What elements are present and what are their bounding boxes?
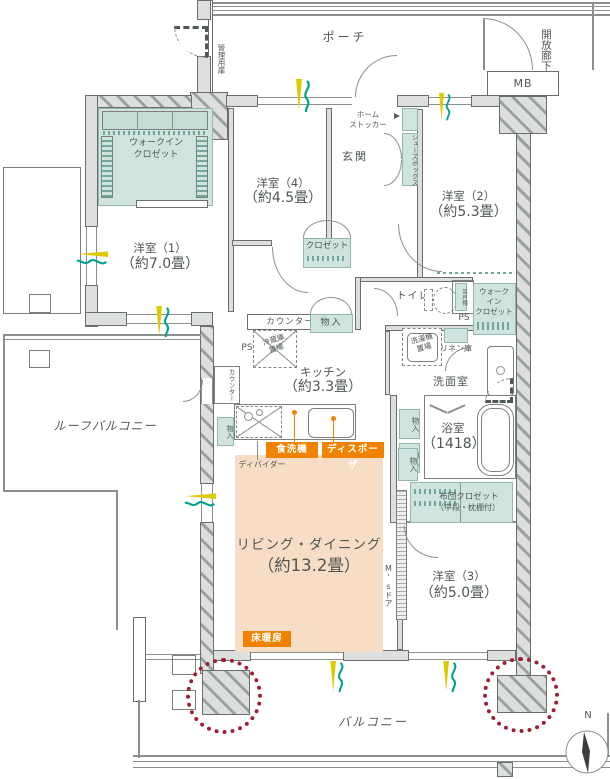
disposer-badge: ディスポーザ (322, 442, 384, 458)
wall (85, 95, 98, 227)
sliding-wall-rail (396, 490, 407, 620)
stove (308, 408, 354, 438)
shoes-box-label: シューズボックス (403, 134, 417, 185)
floor-heating-badge: 床暖房 (243, 631, 291, 647)
wic-left-label: ウォークイン (108, 138, 204, 149)
side-counter-label: カウンター (220, 369, 234, 402)
home-stocker-arrow (394, 113, 400, 119)
wall (191, 312, 213, 326)
western4-size: （約4.5畳） (231, 190, 335, 208)
compass-icon (562, 724, 610, 776)
wic-right-label: ウォーク (474, 287, 514, 296)
closet-label: クロゼット (305, 241, 349, 252)
vanity-bowl (496, 366, 505, 375)
balcony-wall (133, 617, 146, 702)
storage-box-small: 物入 (217, 417, 234, 446)
door-arc (327, 220, 351, 238)
kitchen-name: キッチン (287, 365, 359, 379)
management-door-arc (174, 26, 208, 58)
balcony-label: バルコニー (328, 715, 418, 730)
wic-right-label: クロゼット (474, 307, 514, 316)
management-door-label: 管理用扉 (211, 26, 225, 92)
window (251, 652, 343, 660)
vent-symbol (150, 305, 174, 339)
western4-name: 洋室（4） (237, 176, 329, 190)
roof-terrace-outline (3, 167, 81, 314)
divider-leader (257, 441, 258, 460)
wall (397, 95, 429, 107)
wall (200, 522, 214, 674)
vent-symbol (75, 245, 109, 269)
wall (197, 0, 211, 20)
western2-name: 洋室（2） (421, 189, 516, 203)
open-corridor-label: 開放廊下 (535, 18, 551, 82)
home-stocker-box (402, 108, 418, 131)
porch-label: ポーチ (298, 30, 392, 45)
pillar-highlight-circle (186, 658, 262, 734)
storage-box: 物入 (399, 409, 420, 439)
home-stocker-label: ホーム (348, 110, 388, 119)
dishwasher-badge: 食洗機 (266, 442, 318, 458)
balcony-partition (497, 762, 513, 777)
living-size: （約13.2畳） (240, 556, 378, 577)
hanging-cabinet: 吊戸棚 (455, 283, 467, 311)
entrance-label: 玄関 (337, 150, 373, 164)
vent-symbol (290, 78, 314, 114)
terrace-square (29, 294, 51, 313)
closet-dot-strip (307, 256, 347, 261)
storage-label: 物入 (310, 314, 353, 333)
door-arc (303, 220, 327, 238)
western2-size: （約5.3畳） (415, 204, 522, 222)
balcony-line (138, 700, 140, 758)
pillar (499, 96, 547, 134)
shelf-divider (172, 111, 173, 130)
western3-size: （約5.0畳） (417, 585, 501, 603)
bathroom-name: 浴室 (429, 421, 477, 435)
window (409, 652, 487, 660)
wic-right-label: イン (474, 297, 514, 306)
divider-label: ディバイダー (236, 460, 288, 470)
pillar-highlight-circle (483, 657, 559, 733)
floor-plan: MB ウォークイン クロゼット シューズボックス (0, 0, 610, 779)
futon-label: 布団クロゼット (422, 492, 516, 503)
vent-symbol (324, 660, 348, 694)
wall (226, 95, 258, 107)
sliding-door (136, 200, 208, 208)
leader-line (333, 420, 334, 443)
door-arc (384, 160, 402, 186)
kitchen-size: （約3.3畳） (280, 379, 366, 397)
sink-bowl (244, 412, 253, 421)
washroom-label: 洗面室 (427, 375, 475, 389)
bathroom-size: （1418） (422, 436, 484, 454)
corridor-line (212, 14, 610, 16)
wall (228, 108, 234, 312)
door-arc (398, 224, 442, 272)
linen-box (444, 328, 468, 343)
wall (232, 240, 272, 246)
wall (200, 326, 214, 484)
balcony-railing (133, 767, 610, 768)
wall (355, 277, 361, 330)
corridor-line (212, 6, 610, 7)
compass-north-label: N (578, 710, 598, 723)
wic-sliding-line (437, 272, 513, 274)
western1-name: 洋室（1） (112, 241, 208, 255)
wic-right-dot-strip (477, 322, 512, 330)
home-stocker-label: ストッカー (342, 120, 394, 129)
door-arc (404, 526, 438, 558)
wall-end (172, 655, 196, 675)
roof-balcony-line (116, 490, 118, 630)
door-arc (483, 18, 533, 70)
leader-line (294, 414, 295, 443)
wall (471, 95, 501, 107)
wic-left-label: クロゼット (108, 150, 204, 161)
door-arc (331, 297, 352, 314)
vent-symbol (437, 660, 461, 694)
wall (96, 95, 192, 108)
closet-shelf (102, 111, 208, 130)
corridor-line (592, 2, 594, 70)
living-name: リビング・ダイニング (229, 537, 389, 554)
vent-symbol (432, 92, 456, 122)
corridor-line (212, 10, 610, 11)
futon-label: （中段・枕棚付） (418, 503, 518, 513)
door-arc (310, 297, 331, 314)
roof-balcony-line (3, 334, 5, 492)
western1-size: （約7.0畳） (106, 256, 214, 274)
front-door-arc (355, 55, 397, 97)
balcony-railing (133, 761, 610, 762)
roof-balcony-label: ルーフバルコニー (45, 419, 165, 434)
terrace-square (29, 350, 50, 368)
corridor-line (212, 2, 610, 4)
hanger-pipe (103, 131, 207, 135)
door-arc (384, 133, 402, 159)
western3-name: 洋室（3） (423, 569, 495, 583)
balcony-railing (133, 755, 610, 757)
wall (385, 331, 390, 395)
wall (197, 56, 211, 94)
storage-box: 物入 (398, 448, 418, 481)
toilet-tank (424, 289, 433, 311)
sink-bowl (256, 409, 263, 416)
roof-balcony-line (3, 339, 201, 340)
roof-balcony-line (3, 490, 117, 492)
vent-symbol (183, 487, 217, 511)
shelf-divider (137, 111, 138, 130)
ms-door-label: M'sドア (376, 562, 392, 608)
door-arc (272, 247, 308, 293)
wall (85, 312, 127, 326)
